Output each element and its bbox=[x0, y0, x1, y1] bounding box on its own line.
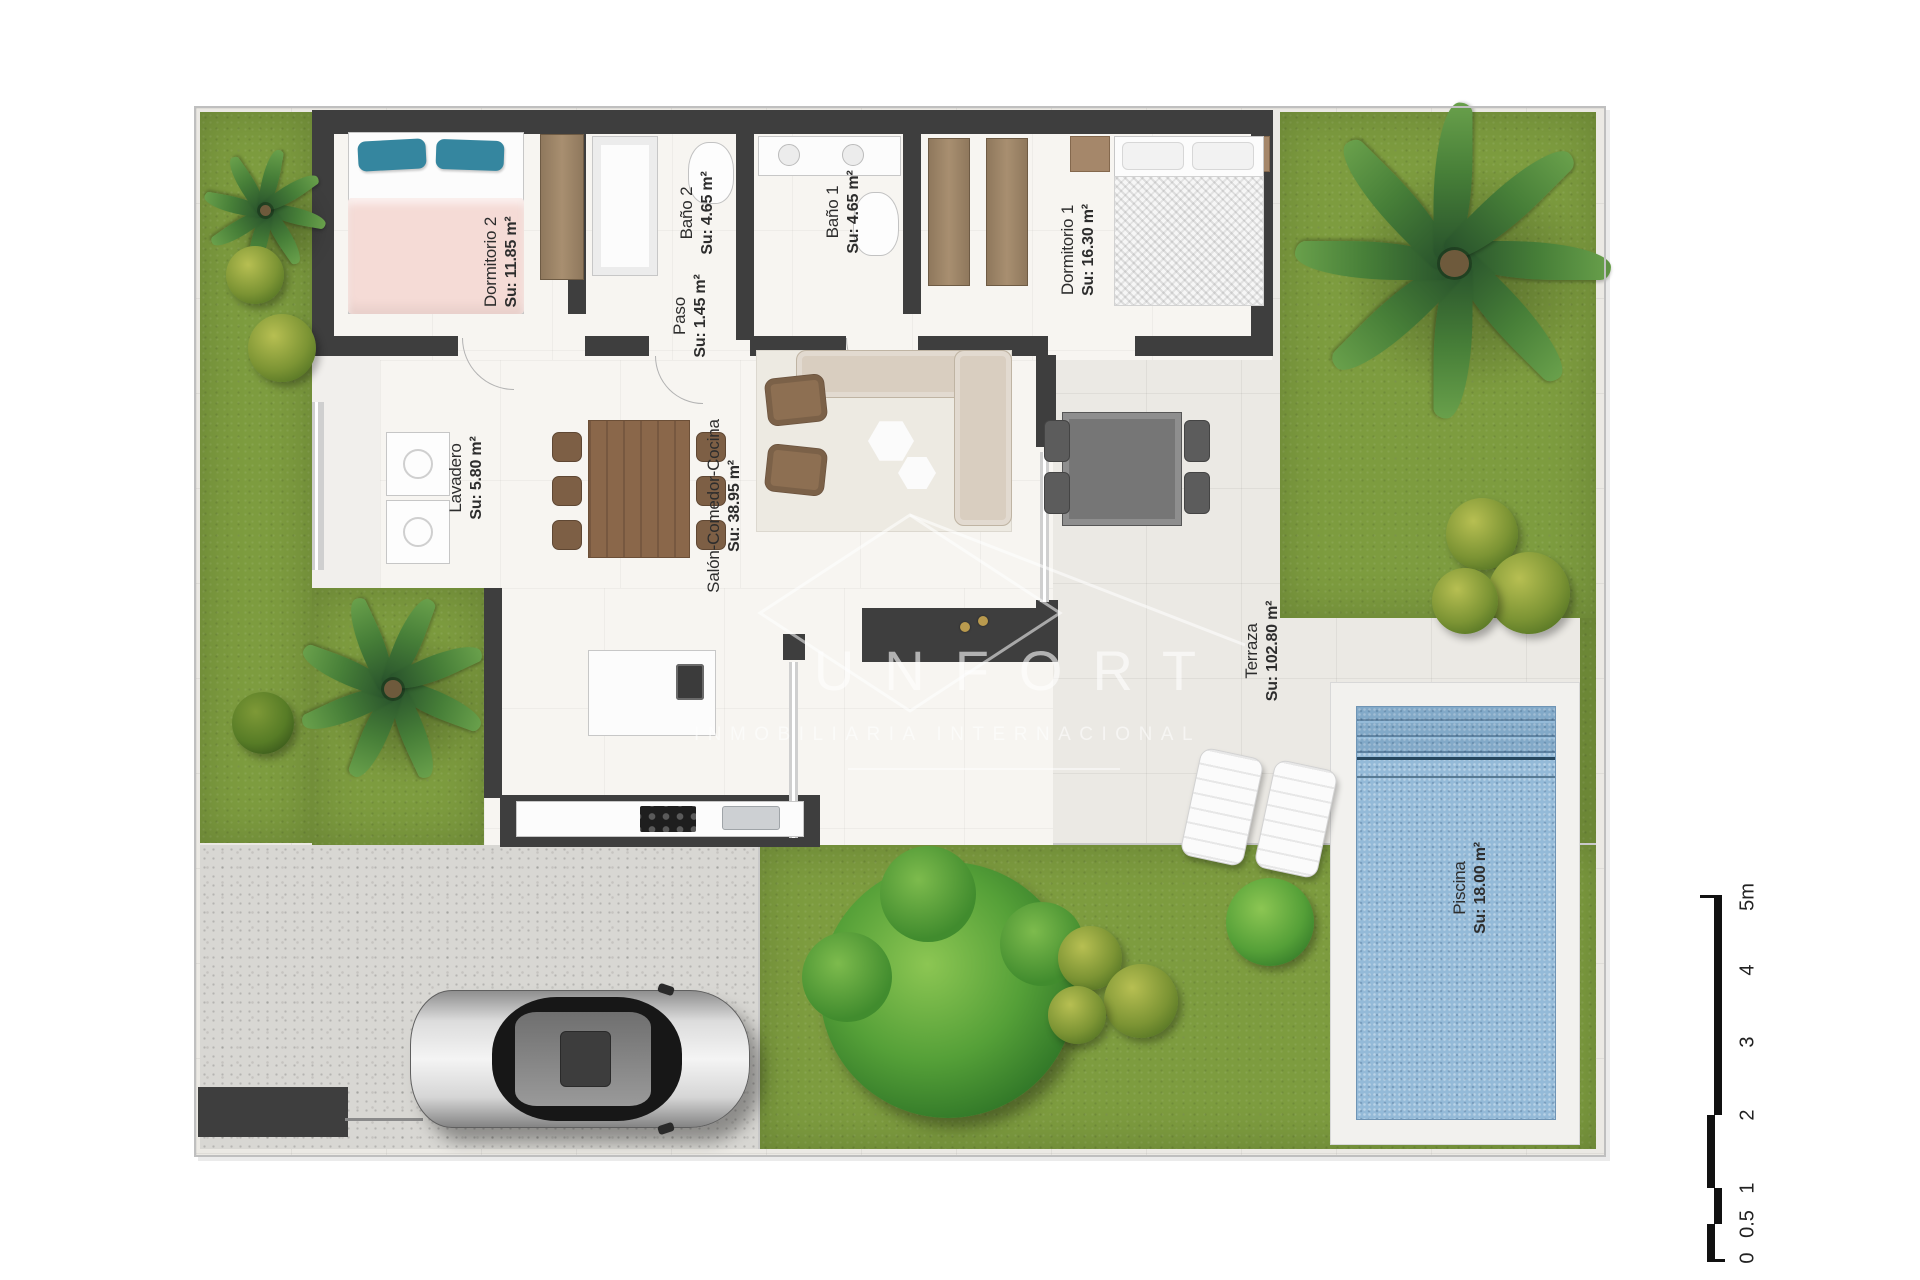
terrace-chair bbox=[1044, 420, 1070, 462]
shower bbox=[592, 136, 658, 276]
pool-step bbox=[1357, 707, 1555, 721]
wall-segment bbox=[736, 110, 754, 340]
wall-segment bbox=[585, 336, 649, 356]
room-label-paso: Paso Su: 1.45 m² bbox=[670, 274, 710, 357]
bush bbox=[1432, 568, 1498, 634]
pool-step bbox=[1357, 723, 1555, 737]
kitchen-sink bbox=[722, 806, 780, 830]
room-label-salon: Salón-Comedor-Cocina Su: 38.95 m² bbox=[704, 419, 744, 593]
pillow bbox=[1192, 142, 1254, 170]
wall-segment bbox=[1135, 336, 1273, 356]
room-name: Dormitorio 1 bbox=[1058, 204, 1078, 296]
palm-tree bbox=[292, 588, 492, 788]
room-name: Lavadero bbox=[446, 436, 466, 519]
coffee-machine bbox=[676, 664, 704, 700]
bush bbox=[1104, 964, 1178, 1038]
scale-label: 4 bbox=[1737, 964, 1760, 975]
scale-label: 0.5 bbox=[1737, 1210, 1760, 1238]
duvet bbox=[1114, 176, 1264, 306]
bush bbox=[1048, 986, 1106, 1044]
dining-chair bbox=[552, 476, 582, 506]
room-label-bano-1: Baño 1 Su: 4.65 m² bbox=[823, 170, 863, 253]
pool-lane-line bbox=[1357, 776, 1555, 778]
cooktop bbox=[640, 806, 696, 832]
watermark-logo bbox=[740, 505, 1300, 775]
driveway-wall-strip bbox=[198, 1087, 348, 1137]
room-area: Su: 16.30 m² bbox=[1080, 204, 1098, 296]
room-name: Piscina bbox=[1450, 842, 1470, 934]
car bbox=[410, 990, 750, 1128]
dining-chair bbox=[552, 432, 582, 462]
room-area: Su: 11.85 m² bbox=[503, 217, 521, 308]
scale-label: 1 bbox=[1737, 1182, 1760, 1193]
scale-label: 0 bbox=[1737, 1252, 1760, 1263]
bush bbox=[1226, 878, 1314, 966]
room-name: Salón-Comedor-Cocina bbox=[704, 419, 724, 593]
wardrobe bbox=[928, 138, 970, 286]
sofa-chaise bbox=[954, 350, 1012, 526]
pool-lane-line bbox=[1357, 757, 1555, 760]
scale-label: 5m bbox=[1737, 883, 1760, 911]
room-name: Dormitorio 2 bbox=[481, 217, 501, 308]
wall-segment bbox=[312, 336, 458, 356]
bush bbox=[1488, 552, 1570, 634]
room-area: Su: 4.65 m² bbox=[699, 171, 717, 254]
room-name: Baño 2 bbox=[677, 171, 697, 254]
room-name: Baño 1 bbox=[823, 170, 843, 253]
room-label-lavadero: Lavadero Su: 5.80 m² bbox=[446, 436, 486, 519]
dining-chair bbox=[552, 520, 582, 550]
room-label-dormitorio-2: Dormitorio 2 Su: 11.85 m² bbox=[481, 217, 521, 308]
wardrobe bbox=[540, 134, 584, 280]
bush bbox=[232, 692, 294, 754]
scale-label: 2 bbox=[1737, 1109, 1760, 1120]
wardrobe bbox=[986, 138, 1028, 286]
room-label-piscina: Piscina Su: 18.00 m² bbox=[1450, 842, 1490, 934]
watermark-underline bbox=[848, 768, 1120, 770]
bush bbox=[248, 314, 316, 382]
bush bbox=[226, 246, 284, 304]
pillow bbox=[1122, 142, 1184, 170]
room-label-bano-2: Baño 2 Su: 4.65 m² bbox=[677, 171, 717, 254]
room-area: Su: 5.80 m² bbox=[468, 436, 486, 519]
washing-machine bbox=[386, 432, 450, 496]
wall-segment bbox=[903, 110, 921, 314]
wall-segment bbox=[312, 110, 1273, 134]
terrace-chair bbox=[1184, 420, 1210, 462]
pillow bbox=[357, 138, 426, 172]
nightstand bbox=[1070, 136, 1110, 172]
room-area: Su: 4.65 m² bbox=[845, 170, 863, 253]
basin bbox=[842, 144, 864, 166]
scale-segment bbox=[1714, 1188, 1722, 1224]
room-area: Su: 1.45 m² bbox=[692, 274, 710, 357]
window-lavadero bbox=[312, 402, 324, 570]
dryer bbox=[386, 500, 450, 564]
palm-tree bbox=[1288, 112, 1618, 412]
floor-plan-page: Dormitorio 2 Su: 11.85 m² Baño 2 Su: 4.6… bbox=[0, 0, 1920, 1280]
pillow bbox=[435, 139, 504, 171]
scale-segment bbox=[1714, 895, 1722, 1115]
driveway-garden-boundary bbox=[758, 845, 760, 1149]
scale-label: 3 bbox=[1737, 1036, 1760, 1047]
room-label-dormitorio-1: Dormitorio 1 Su: 16.30 m² bbox=[1058, 204, 1098, 296]
pool-step bbox=[1357, 739, 1555, 753]
room-area: Su: 18.00 m² bbox=[1472, 842, 1490, 934]
scale-tick bbox=[1707, 1259, 1725, 1262]
scale-segment bbox=[1707, 1224, 1715, 1262]
armchair bbox=[764, 443, 829, 497]
room-name: Paso bbox=[670, 274, 690, 357]
scale-segment bbox=[1707, 1115, 1715, 1188]
armchair bbox=[764, 373, 829, 427]
garden-tree bbox=[820, 862, 1076, 1118]
dining-table bbox=[588, 420, 690, 558]
basin bbox=[778, 144, 800, 166]
